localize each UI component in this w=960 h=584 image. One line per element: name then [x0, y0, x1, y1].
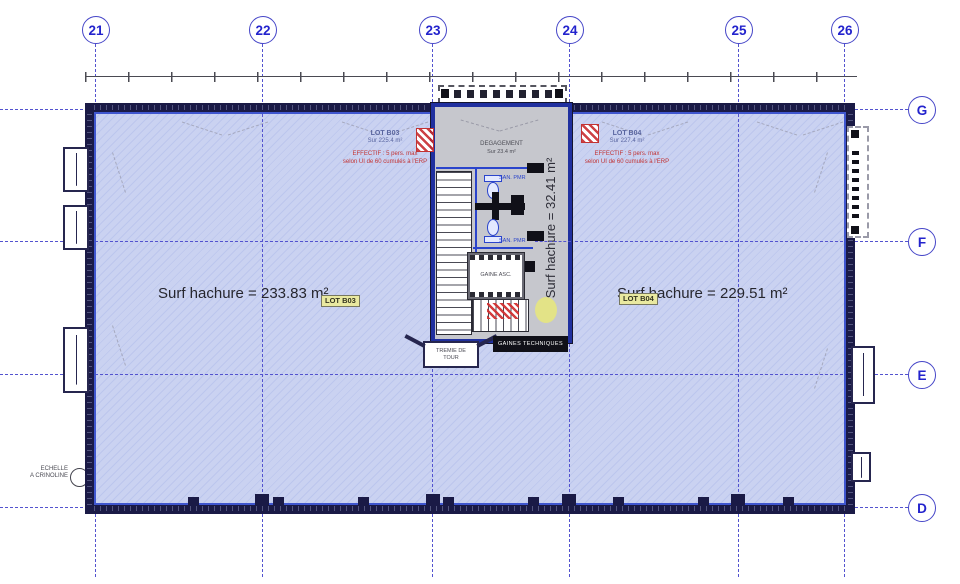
ladder-anchor-top	[851, 130, 859, 138]
crinoline-line1: ECHELLE	[41, 466, 68, 472]
core-door-swing	[461, 120, 500, 132]
row-label-D: D	[917, 501, 927, 516]
ladder-anchor-bottom	[851, 226, 859, 234]
lot-b03-title: LOT B03	[339, 129, 431, 138]
window-box-right-2	[851, 452, 871, 482]
column-label-24: 24	[562, 23, 577, 38]
core-door-swing	[500, 120, 539, 132]
bottom-wall-pilasters	[188, 497, 848, 506]
elevator-door-top	[470, 255, 522, 260]
lot-b04-red-note-2: selon UI de 60 cumulés à l'ERP	[581, 159, 673, 167]
tremie-line1: TREMIE DE	[425, 348, 477, 355]
row-label-E: E	[917, 368, 926, 383]
column-bubble-21: 21	[82, 16, 110, 44]
lot-b03-badge: LOT B03	[321, 295, 360, 307]
elevator-door-bottom	[470, 292, 522, 297]
cartouche-text: GAINES TECHNIQUES	[498, 341, 563, 347]
crinoline-label: ECHELLE A CRINOLINE	[18, 466, 68, 480]
window-box-left-2	[63, 205, 89, 250]
window-box-right-1	[851, 346, 875, 404]
san1-text: SAN. PMR	[499, 175, 526, 181]
row-grid-line-F-core-segment	[535, 241, 571, 242]
lot-b03-badge-text: LOT B03	[325, 296, 356, 305]
stair-flight-upper	[436, 171, 472, 335]
row-bubble-D: D	[908, 494, 936, 522]
row-bubble-G: G	[908, 96, 936, 124]
canopy-post-right	[555, 89, 563, 98]
window-box-left-1	[63, 147, 89, 192]
elevator-label: GAINE ASC.	[470, 272, 522, 279]
row-bubble-F: F	[908, 228, 936, 256]
lot-b04-red-note-1: EFFECTIF : 5 pers. max	[581, 151, 673, 159]
wc-bowl	[487, 219, 499, 236]
canopy-slats	[454, 90, 552, 98]
column-label-23: 23	[425, 23, 440, 38]
column-label-26: 26	[837, 23, 852, 38]
core-block: DEGAGEMENT Sur 23.4 m² SAN. PMR SAN. PMR	[431, 103, 572, 343]
dimension-axis	[85, 76, 857, 77]
column-bubble-22: 22	[249, 16, 277, 44]
lot-b04-badge-text: LOT B04	[623, 294, 654, 303]
surface-label-left: Surf hachure = 233.83 m²	[158, 285, 329, 302]
column-bubble-26: 26	[831, 16, 859, 44]
pilaster-col22	[255, 494, 269, 506]
red-stair-hatch	[487, 303, 519, 319]
surface-label-core-rotated: Surf hachure = 32.41 m²	[543, 123, 559, 333]
lot-b03-red-note-1: EFFECTIF : 5 pers. max	[339, 151, 431, 159]
lot-b04-title: LOT B04	[581, 129, 673, 138]
core-surface-text: Surf hachure = 32.41 m²	[543, 158, 558, 299]
lot-b04-surface: Sur 227.4 m²	[581, 138, 673, 146]
crinoline-line2: A CRINOLINE	[30, 473, 68, 479]
plumbing-stub	[492, 192, 499, 220]
tremie-line2: TOUR	[425, 355, 477, 362]
ladder-rungs	[852, 146, 859, 218]
services-cartouche: GAINES TECHNIQUES	[493, 336, 568, 352]
escape-ladder	[847, 126, 869, 238]
core-partition-h2	[473, 247, 533, 249]
row-bubble-E: E	[908, 361, 936, 389]
elevator-text: GAINE ASC.	[480, 272, 511, 278]
tremie-box: TREMIE DE TOUR	[423, 341, 479, 368]
window-box-left-3	[63, 327, 89, 393]
lot-b03-red-note-2: selon UI de 60 cumulés à l'ERP	[339, 159, 431, 167]
san-pmr-label-2: SAN. PMR	[499, 238, 526, 245]
san-pmr-label-1: SAN. PMR	[499, 175, 526, 182]
surface-left-text: Surf hachure = 233.83 m²	[158, 285, 329, 302]
elevator-shaft: GAINE ASC.	[468, 253, 524, 299]
pilaster-col23	[426, 494, 440, 506]
column-bubble-24: 24	[556, 16, 584, 44]
lot-b03-note: LOT B03 Sur 225.4 m² EFFECTIF : 5 pers. …	[339, 129, 431, 166]
pilaster-col24	[562, 494, 576, 506]
door-threshold	[527, 231, 544, 241]
column-label-22: 22	[255, 23, 270, 38]
dimension-ticks	[85, 72, 857, 82]
column-label-21: 21	[88, 23, 103, 38]
wall-texture-bottom	[94, 506, 846, 511]
tremie-label: TREMIE DE TOUR	[425, 348, 477, 362]
column-label-25: 25	[731, 23, 746, 38]
pilaster-col25	[731, 494, 745, 506]
row-label-F: F	[918, 235, 926, 250]
floor-plan-canvas: 21 22 23 24 25 26 G F E D ECHELLE A CRIN…	[0, 0, 960, 584]
canopy	[438, 85, 567, 104]
dimension-line	[85, 72, 857, 82]
san2-text: SAN. PMR	[499, 238, 526, 244]
row-label-G: G	[917, 103, 928, 118]
lot-b04-note: LOT B04 Sur 227.4 m² EFFECTIF : 5 pers. …	[581, 129, 673, 166]
canopy-post-left	[441, 89, 449, 98]
column-bubble-23: 23	[419, 16, 447, 44]
lot-b04-badge: LOT B04	[619, 293, 658, 305]
column-bubble-25: 25	[725, 16, 753, 44]
core-partition-v1	[475, 169, 477, 257]
sink-fixture	[511, 195, 524, 215]
lot-b03-surface: Sur 225.4 m²	[339, 138, 431, 146]
door-threshold	[527, 163, 544, 173]
